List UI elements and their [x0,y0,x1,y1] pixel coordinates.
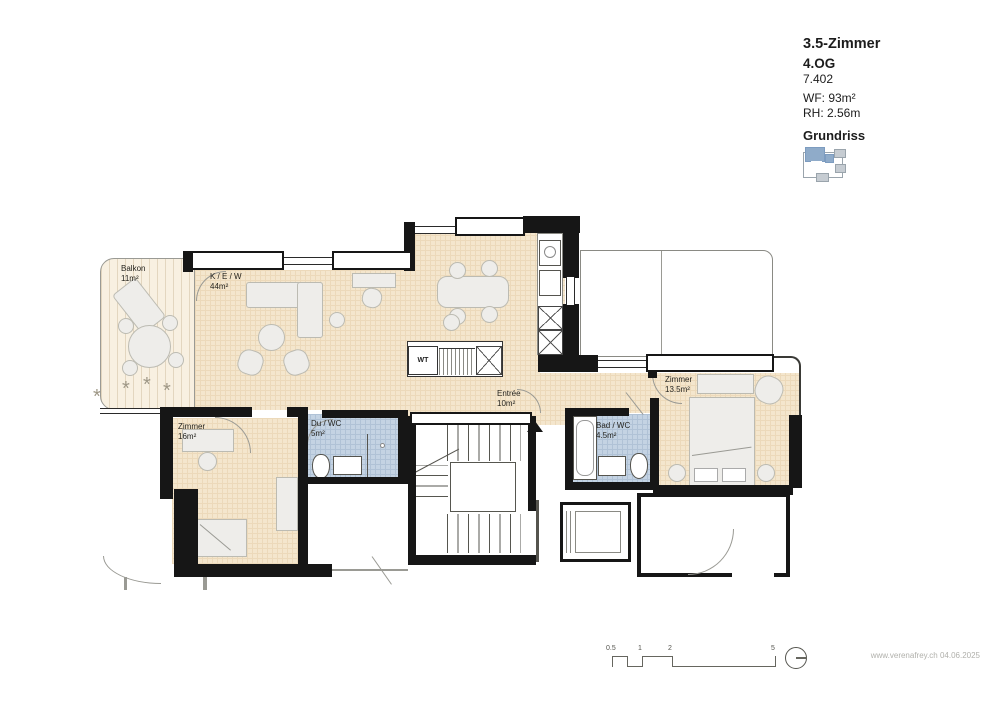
scale-segment [612,656,627,657]
nightstand [757,464,775,482]
window [414,226,456,234]
plant-icon: * [163,386,171,396]
room-area: 10m² [497,399,521,409]
neighbor-terrace [580,250,773,357]
dining-chair [481,260,498,277]
window [597,360,647,368]
balcony-chair [118,318,134,334]
toilet [630,453,648,479]
island-cabinet [476,346,502,375]
keyplan-highlight-2 [825,154,834,163]
plant-icon: * [143,380,151,390]
keyplan-block [834,149,846,158]
floorplan-page: WT * * * * Bal [0,0,1000,706]
room-name: Entrée [497,389,521,399]
washer-tower-island: WT [407,341,503,377]
shower-handle [380,443,385,448]
coffee-table [258,324,285,351]
curved-rail [103,556,161,584]
washer-tower-label: WT [418,357,429,364]
wall [565,408,573,490]
wall [536,500,539,562]
dining-chair [443,314,460,331]
bathtub-inner [576,420,594,476]
plan-living-area: WF: 93m² [803,91,856,105]
room-area: 11m² [121,274,145,284]
wall [563,230,579,278]
room-label-shower-wc: Du / WC 5m² [311,419,341,439]
entrance-arrow [527,421,543,432]
wall [160,407,173,499]
room-label-bath-wc: Bad / WC 4.5m² [596,421,630,441]
balcony-chair [162,315,178,331]
stair-landing [450,462,516,512]
room-label-bedroom-small: Zimmer 13.5m² [665,375,692,395]
window [332,251,412,270]
balcony-chair [168,352,184,368]
wall [563,304,579,358]
scale-segment [642,656,672,657]
window [646,354,774,372]
wall-stub [124,577,127,590]
plan-type-label: Grundriss [803,128,865,143]
room-label-bedroom-large: Zimmer 16m² [178,422,205,442]
keyplan-court [811,161,822,172]
sideboard [352,273,396,288]
room-area: 5m² [311,429,341,439]
room-name: Zimmer [178,422,205,432]
desk-chair [198,452,217,471]
room-name: Zimmer [665,375,692,385]
wardrobe [276,477,298,531]
wall [565,482,659,490]
room-name: K / E / W [210,272,242,282]
window [455,217,525,236]
window [566,277,575,305]
window [191,251,284,270]
keyplan-highlight [805,147,825,162]
wall [408,555,536,565]
nightstand [668,464,686,482]
room-name: Balkon [121,264,145,274]
room-area: 16m² [178,432,205,442]
room-label-balkon: Balkon 11m² [121,264,145,284]
wall [789,415,802,488]
kitchen-cooktop [539,270,561,296]
wall [538,355,598,372]
scale-label-5: 5 [771,645,775,652]
wall [398,410,408,484]
sofa-section [297,282,323,338]
stair-flight-upper [447,421,521,461]
shower-partition [367,434,368,478]
plant-icon: * [122,384,130,394]
wardrobe [697,374,754,394]
vanity-sink [333,456,362,475]
keyplan-block [835,164,846,173]
dining-chair [449,262,466,279]
wall [322,410,404,418]
wall [408,416,416,565]
footer-credit: www.verenafrey.ch 04.06.2025 [840,651,980,660]
plan-room-height: RH: 2.56m [803,106,860,120]
neighbor-door-gap [732,571,774,579]
threshold-line [332,569,408,571]
dining-table [437,276,509,308]
room-label-kitchen-living: K / E / W 44m² [210,272,242,292]
scale-tick [642,656,643,667]
window [284,257,334,265]
balcony-chair [122,360,138,376]
scale-tick [775,656,776,667]
stair-flight-lower [447,514,521,553]
keyplan-block [816,173,829,182]
wall [298,407,308,569]
wall [174,564,332,577]
room-label-entree: Entrée 10m² [497,389,521,409]
wall [300,477,408,484]
washer-tower-cell: WT [408,346,438,375]
plan-unit-number: 7.402 [803,72,833,86]
pillow [722,468,746,482]
side-table [329,312,345,328]
facade-edge [772,356,801,416]
elevator-door [566,511,574,553]
room-name: Bad / WC [596,421,630,431]
wall [565,408,629,416]
vanity-sink [598,456,626,476]
keyplan-icon [803,147,849,183]
wall [653,485,793,495]
wall [650,408,659,488]
kitchen-tall-cabinet [538,330,563,355]
scale-segment [672,666,775,667]
island-appliance-hatch [439,348,475,375]
stair-top-wall [410,412,532,425]
plan-floor: 4.OG [803,56,835,71]
scale-label-05: 0.5 [606,645,616,652]
room-area: 13.5m² [665,385,692,395]
plan-title: 3.5-Zimmer [803,36,880,52]
wall [160,407,252,417]
balcony-rail [100,408,162,414]
dining-chair [481,306,498,323]
toilet [312,454,330,479]
terrace-divider-line [661,251,662,356]
room-name: Du / WC [311,419,341,429]
room-area: 4.5m² [596,431,630,441]
scale-segment [627,666,642,667]
scale-label-1: 1 [638,645,642,652]
pillow [694,468,718,482]
north-indicator-line [796,657,807,659]
wall-stub [203,577,207,590]
scale-tick [612,656,613,667]
kitchen-tall-cabinet [538,306,563,330]
plant-icon: * [93,392,101,402]
room-area: 44m² [210,282,242,292]
elevator-cabin [575,511,621,553]
scale-label-2: 2 [668,645,672,652]
kitchen-sink-basin [544,246,556,258]
